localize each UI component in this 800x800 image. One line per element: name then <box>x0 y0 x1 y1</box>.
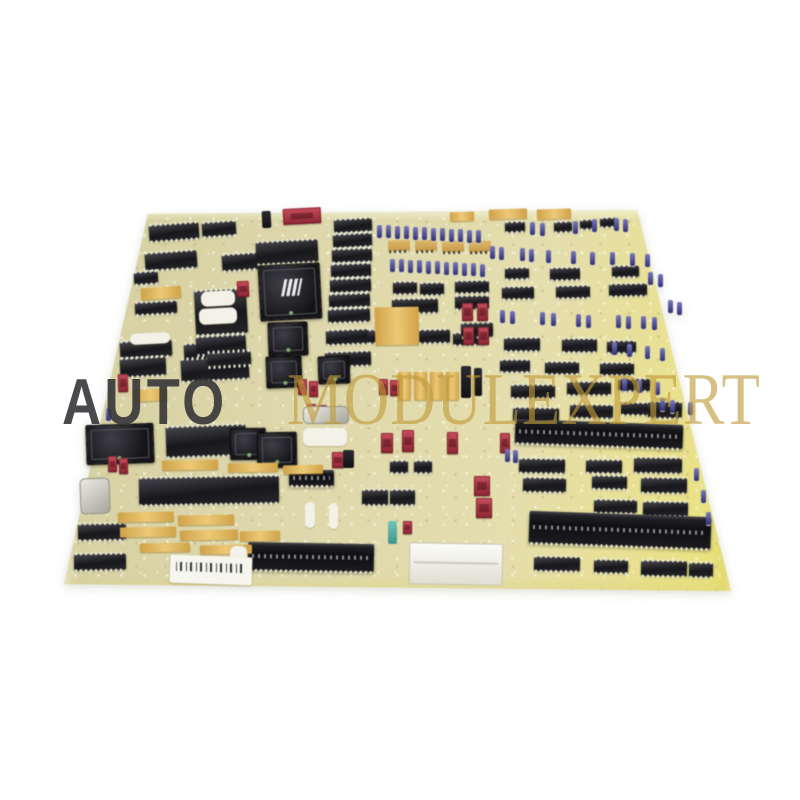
gold-pad <box>450 212 474 222</box>
capacitor <box>399 259 404 272</box>
capacitor <box>499 247 504 260</box>
serial-label <box>170 555 253 586</box>
capacitor <box>701 490 706 503</box>
capacitor <box>417 260 422 273</box>
capacitor <box>641 316 646 329</box>
capacitor <box>404 226 409 239</box>
dip-ic <box>641 561 687 577</box>
dip-ic <box>134 271 159 285</box>
capacitor <box>408 260 413 273</box>
plcc-chip <box>267 321 308 356</box>
capacitor <box>467 230 472 243</box>
gold-pad <box>537 208 571 219</box>
red-dip-switch <box>119 458 128 474</box>
dip-ic <box>641 478 687 494</box>
metal-can <box>79 477 110 514</box>
capacitor <box>471 263 476 276</box>
red-dip-switch <box>463 327 474 345</box>
red-dip-switch <box>108 456 117 472</box>
capacitor <box>458 229 463 242</box>
dip-ic <box>390 490 415 505</box>
gold-pad <box>140 543 190 553</box>
capacitor <box>652 317 657 330</box>
red-dip-switch <box>477 303 488 321</box>
capacitor <box>395 226 400 239</box>
capacitor <box>623 219 628 232</box>
dip-ic-gold <box>442 241 464 253</box>
dip-ic <box>505 268 529 279</box>
dip-ic <box>328 308 370 322</box>
dip-ic-gold <box>388 240 410 252</box>
capacitor <box>505 449 510 462</box>
capacitor <box>453 262 458 275</box>
capacitor <box>610 252 615 265</box>
capacitor <box>576 314 581 327</box>
gold-pad <box>118 512 174 523</box>
dip-ic <box>689 563 713 577</box>
capacitor <box>590 252 595 265</box>
capacitor <box>694 468 699 481</box>
capacitor <box>377 225 382 238</box>
capacitor <box>573 221 578 234</box>
capacitor <box>627 344 632 357</box>
dip-ic <box>534 557 580 572</box>
teal-capacitor <box>388 521 397 544</box>
gold-pad <box>180 529 238 540</box>
dip-ic <box>504 338 540 351</box>
white-label <box>305 502 315 528</box>
capacitor <box>440 228 445 241</box>
dip-ic <box>202 221 237 237</box>
dip-ic <box>78 524 126 541</box>
dip-ic <box>586 460 622 474</box>
dip-ic <box>556 286 590 299</box>
dip-ic <box>414 461 432 473</box>
gold-pad <box>120 527 176 538</box>
capacitor <box>540 223 545 236</box>
dip-ic <box>74 554 126 571</box>
dip-ic-gold <box>415 240 437 252</box>
capacitor <box>630 253 635 266</box>
red-dip-switch <box>478 327 489 345</box>
capacitor <box>422 227 427 240</box>
gold-pad <box>162 460 218 471</box>
capacitor <box>431 228 436 241</box>
dip-ic <box>594 560 628 574</box>
capacitor <box>586 315 591 328</box>
dip-ic <box>612 266 639 277</box>
dip-ic <box>362 490 388 505</box>
dip-ic <box>139 476 279 505</box>
capacitor <box>449 229 454 242</box>
pin1-dot <box>247 453 251 457</box>
white-label <box>329 503 338 529</box>
dip-ic <box>255 239 318 264</box>
product-photo: AUTO MODULEXPERT <box>0 0 800 800</box>
capacitor <box>390 259 395 272</box>
gold-pad <box>240 531 280 542</box>
watermark-suffix: MODULEXPERT <box>287 372 761 428</box>
white-label <box>130 332 171 345</box>
white-connector <box>409 542 504 586</box>
dip-ic <box>455 281 489 294</box>
dip-ic <box>592 476 627 490</box>
capacitor <box>476 230 481 243</box>
capacitor <box>546 250 551 263</box>
gold-pad <box>178 515 234 526</box>
plcc-chip <box>258 262 323 321</box>
ribbon-connector <box>248 542 374 572</box>
dip-ic <box>135 301 178 315</box>
capacitor <box>500 310 505 323</box>
capacitor <box>426 261 431 274</box>
dip-ic <box>594 500 637 514</box>
capacitor <box>444 262 449 275</box>
chip-logo <box>281 278 302 296</box>
transistor-post <box>262 211 272 228</box>
ribbon-connector <box>528 511 711 549</box>
capacitor <box>706 512 711 525</box>
capacitor <box>626 316 631 329</box>
dip-ic <box>550 268 580 281</box>
capacitor <box>520 248 525 261</box>
transistor-post <box>343 450 354 468</box>
dip-ic <box>393 282 417 294</box>
dip-ic <box>502 287 534 300</box>
capacitor <box>614 218 619 231</box>
capacitor <box>462 263 467 276</box>
white-label <box>201 290 236 307</box>
dip-ic <box>420 283 444 295</box>
dip-ic <box>554 222 572 233</box>
capacitor <box>677 302 682 315</box>
dip-ic <box>523 478 566 493</box>
dip-ic <box>144 250 197 271</box>
capacitor <box>513 450 518 463</box>
capacitor <box>658 274 663 287</box>
capacitor <box>571 251 576 264</box>
red-dip-switch <box>403 521 412 534</box>
capacitor <box>616 315 621 328</box>
capacitor <box>480 264 485 277</box>
capacitor <box>645 254 650 267</box>
capacitor <box>510 311 515 324</box>
gold-pad <box>283 465 323 475</box>
capacitor <box>529 249 534 262</box>
watermark-prefix: AUTO <box>62 376 227 427</box>
gold-pad <box>228 463 278 473</box>
dip-ic <box>326 329 370 345</box>
capacitor <box>612 342 617 355</box>
capacitor <box>490 246 495 259</box>
dip-ic <box>505 222 525 233</box>
capacitor <box>530 222 535 235</box>
capacitor <box>413 227 418 240</box>
pin1-dot <box>289 311 293 315</box>
gold-pad <box>375 307 420 346</box>
capacitor <box>386 225 391 238</box>
red-dip-switch <box>474 476 490 496</box>
capacitor <box>592 219 597 232</box>
capacitor <box>551 313 556 326</box>
dip-ic <box>609 284 647 297</box>
white-label <box>199 307 238 325</box>
capacitor <box>435 261 440 274</box>
dip-ic <box>149 222 200 241</box>
gold-pad <box>489 208 527 219</box>
capacitor <box>540 312 545 325</box>
dip-ic <box>519 459 565 474</box>
red-dip-switch <box>237 281 250 298</box>
red-dip-switch <box>462 303 473 321</box>
pin1-dot <box>287 348 291 352</box>
dip-ic <box>562 339 597 352</box>
capacitor <box>668 300 673 313</box>
dip-ic <box>221 253 258 271</box>
red-dip-switch <box>476 498 492 518</box>
dip-ic <box>634 458 682 474</box>
capacitor <box>648 272 653 285</box>
dip-ic <box>390 461 408 473</box>
capacitor <box>645 346 650 359</box>
red-dip-switch <box>283 207 322 225</box>
